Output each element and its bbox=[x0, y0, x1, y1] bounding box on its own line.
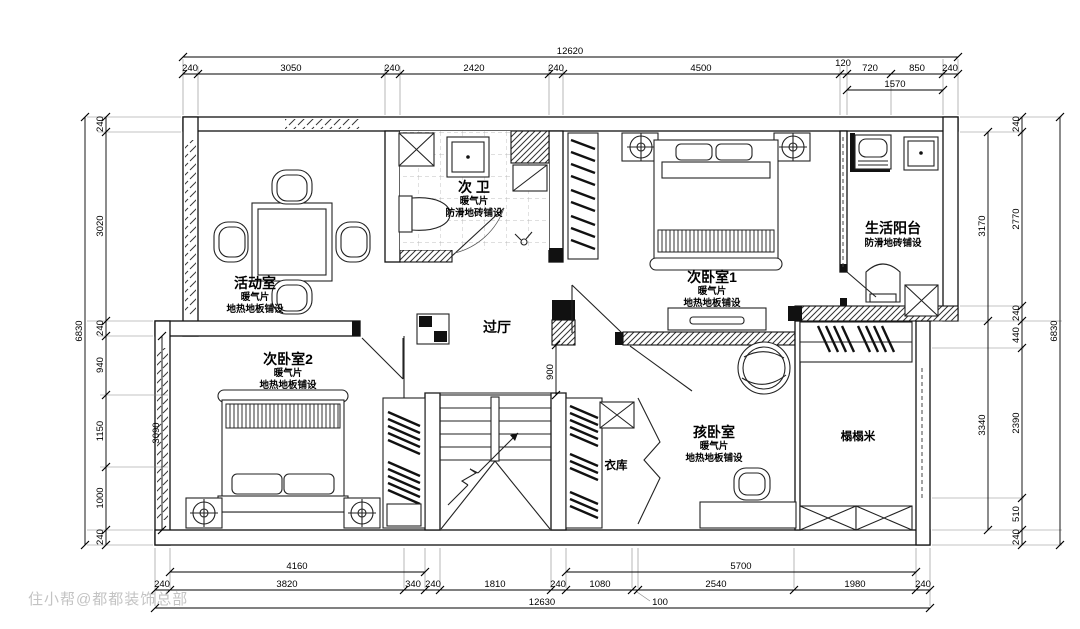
dim-top-sub: 1570 bbox=[884, 79, 905, 90]
label-bedroom2-heat: 暖气片 bbox=[274, 367, 303, 379]
dimension-interior: 900 bbox=[545, 341, 560, 399]
dim: 240 bbox=[915, 579, 931, 590]
dim: 340 bbox=[405, 579, 421, 590]
label-activity-heat: 暖气片 bbox=[241, 291, 270, 303]
label-bedroom1: 次卧室1 bbox=[687, 269, 737, 285]
dim: 120 bbox=[835, 58, 851, 69]
shaft-icon bbox=[399, 133, 434, 166]
window-hatch-activity bbox=[185, 140, 196, 315]
label-bath-heat: 暖气片 bbox=[460, 195, 489, 207]
watermark: 住小帮@都都装饰总部 bbox=[28, 588, 188, 609]
dim: 2390 bbox=[1011, 412, 1022, 433]
dim: 850 bbox=[909, 63, 925, 74]
dim: 240 bbox=[182, 63, 198, 74]
dim-bottom-subright: 5700 bbox=[730, 561, 751, 572]
dim-right-subtop: 3170 bbox=[977, 215, 988, 236]
chair-icon bbox=[866, 264, 900, 302]
dim: 240 bbox=[384, 63, 400, 74]
dim: 240 bbox=[425, 579, 441, 590]
room-hall bbox=[362, 314, 449, 379]
dim: 240 bbox=[1011, 305, 1022, 321]
door-swing-icon bbox=[630, 346, 692, 391]
label-hall: 过厅 bbox=[483, 319, 511, 335]
label-kidroom: 孩卧室 bbox=[693, 424, 735, 440]
dim: 240 bbox=[95, 529, 106, 545]
dim: 510 bbox=[1011, 506, 1022, 522]
desk-icon bbox=[700, 468, 796, 528]
dim-bottom-subleft: 4160 bbox=[286, 561, 307, 572]
door-swing-icon bbox=[362, 338, 403, 379]
wardrobe-icon bbox=[800, 322, 912, 362]
dim-bottom-gap: 100 bbox=[652, 597, 668, 608]
dim: 240 bbox=[95, 320, 106, 336]
dim: 240 bbox=[942, 63, 958, 74]
label-bath-floor: 防滑地砖铺设 bbox=[445, 207, 503, 219]
tv-cabinet-icon bbox=[668, 308, 766, 330]
window-symbol bbox=[417, 314, 449, 344]
label-kidroom-floor: 地热地板铺设 bbox=[685, 452, 743, 464]
dim-left-sub: 3090 bbox=[151, 422, 162, 443]
dining-table-set-icon bbox=[214, 170, 370, 314]
dim: 3020 bbox=[95, 215, 106, 236]
sink-icon bbox=[904, 137, 938, 170]
dim: 2540 bbox=[705, 579, 726, 590]
dimensions-top: 12620 240 3050 240 2420 240 4500 120 720… bbox=[179, 46, 962, 115]
shaft-icon bbox=[600, 402, 634, 428]
dim: 240 bbox=[95, 116, 106, 132]
washing-machine-icon bbox=[850, 133, 891, 172]
dim: 1000 bbox=[95, 487, 106, 508]
dim: 1150 bbox=[95, 421, 106, 441]
ceiling-lamp-icon bbox=[344, 498, 380, 528]
label-bedroom1-floor: 地热地板铺设 bbox=[683, 297, 741, 309]
dim: 2770 bbox=[1011, 208, 1022, 229]
dim: 1980 bbox=[844, 579, 865, 590]
room-tatami bbox=[800, 322, 912, 530]
shaft-icon bbox=[905, 285, 938, 316]
room-activity bbox=[214, 170, 370, 314]
radiator-top-wall bbox=[285, 119, 360, 129]
dim: 440 bbox=[1011, 327, 1022, 343]
dim: 1080 bbox=[589, 579, 610, 590]
dim: 240 bbox=[550, 579, 566, 590]
label-balcony-floor: 防滑地砖铺设 bbox=[864, 237, 922, 249]
dimensions-bottom: 240 3820 340 240 1810 240 1080 2540 1980… bbox=[151, 548, 934, 612]
dim-bottom-total: 12630 bbox=[529, 597, 555, 608]
dim: 240 bbox=[1011, 116, 1022, 132]
label-balcony: 生活阳台 bbox=[865, 220, 921, 236]
label-closet: 衣库 bbox=[605, 458, 628, 472]
ceiling-lamp-icon bbox=[186, 498, 222, 528]
cabinet-icon bbox=[800, 506, 912, 530]
label-bedroom2-floor: 地热地板铺设 bbox=[259, 379, 317, 391]
dim: 240 bbox=[548, 63, 564, 74]
dim: 2420 bbox=[463, 63, 484, 74]
ceiling-lamp-icon bbox=[774, 133, 810, 161]
dim: 3050 bbox=[280, 63, 301, 74]
sink-icon bbox=[447, 137, 489, 177]
double-bed-icon bbox=[650, 140, 782, 270]
dim: 240 bbox=[1011, 529, 1022, 545]
dim: 4500 bbox=[690, 63, 711, 74]
room-closet bbox=[566, 346, 692, 528]
dim-top-total: 12620 bbox=[557, 46, 583, 57]
shelf-icon bbox=[513, 165, 547, 191]
dim: 1810 bbox=[484, 579, 505, 590]
ceiling-lamp-icon bbox=[622, 133, 658, 161]
round-chair-icon bbox=[738, 342, 790, 394]
wardrobe-icon bbox=[383, 398, 425, 528]
floor-plan-drawing: 12620 240 3050 240 2420 240 4500 120 720… bbox=[0, 0, 1080, 629]
label-tatami: 榻榻米 bbox=[841, 429, 876, 443]
dim-right-total: 6830 bbox=[1049, 320, 1060, 341]
wardrobe-icon bbox=[568, 133, 598, 259]
label-activity-floor: 地热地板铺设 bbox=[226, 303, 284, 315]
dim: 940 bbox=[95, 357, 106, 373]
room-bedroom2 bbox=[186, 390, 425, 528]
stairs-icon bbox=[440, 395, 551, 530]
closet-front bbox=[638, 398, 660, 524]
dim: 3820 bbox=[276, 579, 297, 590]
door-swing-icon bbox=[572, 285, 622, 333]
dim-hall-opening: 900 bbox=[545, 364, 556, 380]
dim-right-subbottom: 3340 bbox=[977, 414, 988, 435]
label-kidroom-heat: 暖气片 bbox=[700, 440, 729, 452]
dim: 720 bbox=[862, 63, 878, 74]
floor-plan-canvas: 12620 240 3050 240 2420 240 4500 120 720… bbox=[0, 0, 1080, 629]
double-bed-icon bbox=[218, 390, 348, 512]
label-bath: 次 卫 bbox=[458, 179, 490, 195]
label-bedroom2: 次卧室2 bbox=[263, 351, 313, 367]
label-activity: 活动室 bbox=[234, 275, 276, 291]
label-bedroom1-heat: 暖气片 bbox=[698, 285, 727, 297]
dim-left-total: 6830 bbox=[74, 320, 85, 341]
